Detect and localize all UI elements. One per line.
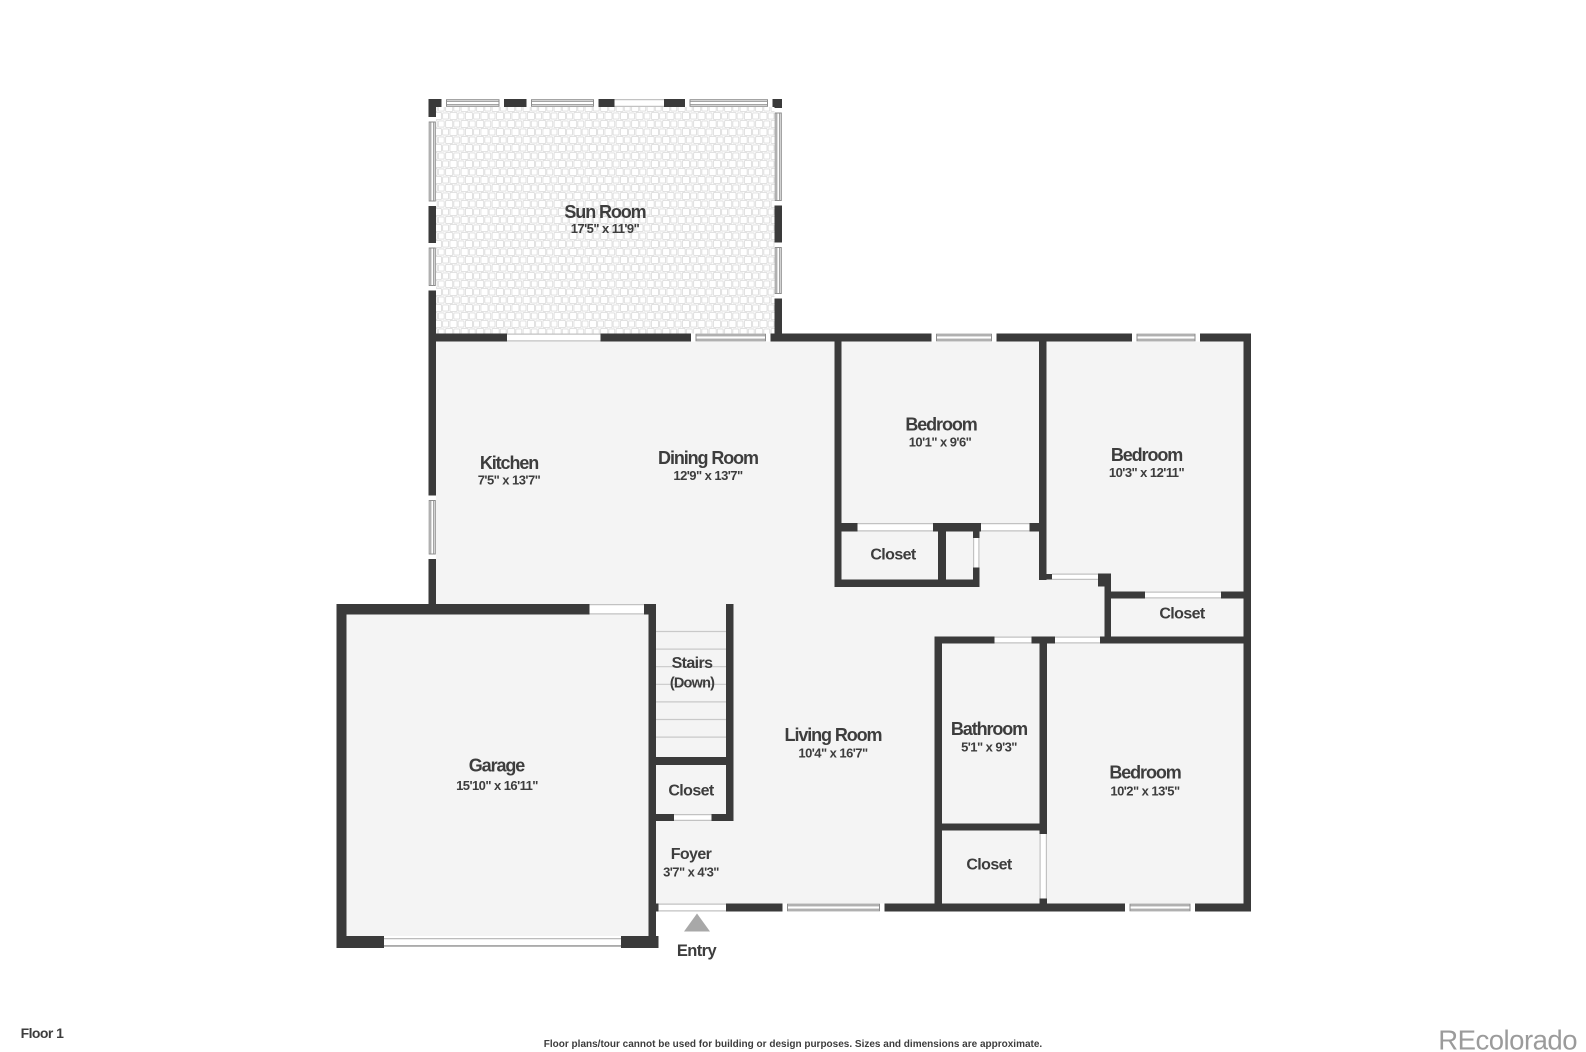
svg-text:Living Room: Living Room xyxy=(785,725,882,745)
svg-text:7'5" x 13'7": 7'5" x 13'7" xyxy=(478,473,541,488)
svg-text:Closet: Closet xyxy=(1159,606,1206,623)
svg-text:Bedroom: Bedroom xyxy=(1109,763,1180,783)
svg-text:Entry: Entry xyxy=(677,942,718,960)
svg-text:Bathroom: Bathroom xyxy=(951,719,1027,739)
svg-text:Stairs: Stairs xyxy=(672,655,714,672)
svg-text:10'2" x 13'5": 10'2" x 13'5" xyxy=(1110,784,1180,799)
svg-text:17'5" x 11'9": 17'5" x 11'9" xyxy=(571,221,640,236)
svg-text:Closet: Closet xyxy=(966,857,1013,874)
svg-text:REcolorado: REcolorado xyxy=(1438,1025,1577,1052)
svg-text:3'7" x 4'3": 3'7" x 4'3" xyxy=(663,865,719,880)
svg-text:Floor plans/tour cannot be use: Floor plans/tour cannot be used for buil… xyxy=(544,1039,1043,1050)
svg-text:10'3" x 12'11": 10'3" x 12'11" xyxy=(1109,465,1185,480)
svg-text:Closet: Closet xyxy=(668,783,715,800)
svg-text:Bedroom: Bedroom xyxy=(1111,445,1182,465)
svg-text:Kitchen: Kitchen xyxy=(480,453,538,473)
svg-text:Dining Room: Dining Room xyxy=(658,448,758,468)
svg-text:12'9" x 13'7": 12'9" x 13'7" xyxy=(673,468,743,483)
svg-text:15'10" x 16'11": 15'10" x 16'11" xyxy=(456,778,538,793)
svg-text:5'1" x 9'3": 5'1" x 9'3" xyxy=(961,740,1017,755)
svg-text:Foyer: Foyer xyxy=(671,846,712,863)
svg-text:10'4" x 16'7": 10'4" x 16'7" xyxy=(798,746,868,761)
svg-text:10'1" x 9'6": 10'1" x 9'6" xyxy=(909,435,972,450)
svg-text:Closet: Closet xyxy=(870,547,917,564)
svg-text:Sun Room: Sun Room xyxy=(564,202,645,222)
svg-text:Bedroom: Bedroom xyxy=(905,415,976,435)
svg-text:Floor 1: Floor 1 xyxy=(21,1025,65,1041)
svg-text:(Down): (Down) xyxy=(670,676,715,692)
svg-text:Garage: Garage xyxy=(469,756,526,776)
